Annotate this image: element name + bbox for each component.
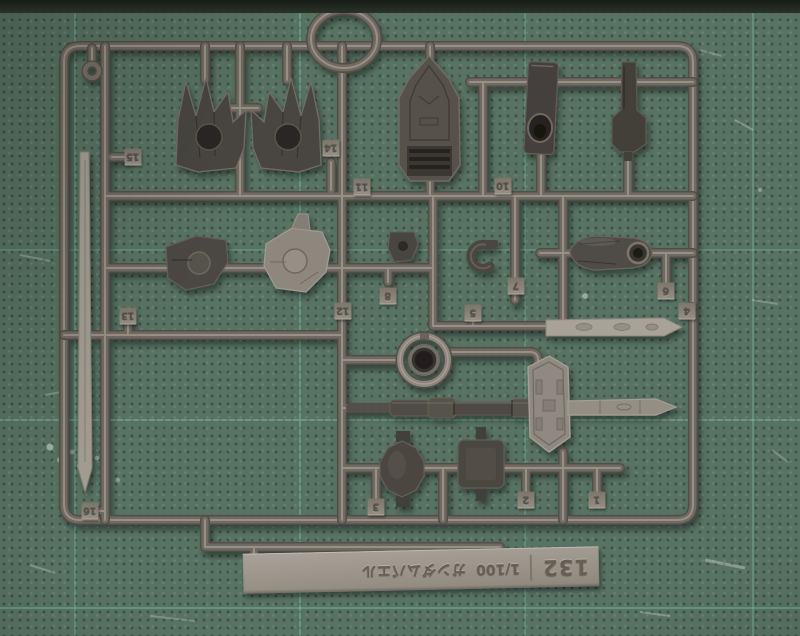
part-number-tag-8: 8 xyxy=(380,288,397,305)
eyelet-ring xyxy=(85,64,99,78)
photo-canvas: 1514111013128756416321 132 1/100 ガンダムバエル xyxy=(0,0,800,636)
pommel-part xyxy=(380,431,424,507)
part-number-tag-6: 6 xyxy=(658,283,675,300)
collar-ring-part xyxy=(400,333,448,384)
part-number-tag-14: 14 xyxy=(323,140,340,157)
part-number-tag-13: 13 xyxy=(120,308,137,325)
c-clip-part xyxy=(471,240,498,268)
part-number-tag-10: 10 xyxy=(495,178,512,195)
label-kit-code: 132 xyxy=(542,554,589,579)
part-number-tag-12: 12 xyxy=(335,303,352,320)
part-number-tag-15: 15 xyxy=(125,149,142,166)
part-number-tag-1: 1 xyxy=(589,492,606,509)
part-number-tag-3: 3 xyxy=(368,499,385,516)
shield-plate-part xyxy=(399,56,460,181)
handle-part xyxy=(612,62,646,161)
pod-part xyxy=(570,236,652,270)
rifle-shaft-part xyxy=(346,398,536,418)
part-number-tag-7: 7 xyxy=(508,278,525,295)
label-kit-name: ガンダムバエル xyxy=(361,559,466,581)
bracket-part-right xyxy=(264,214,330,292)
blade-part-horizontal xyxy=(546,318,682,336)
runner-label-plate: 132 1/100 ガンダムバエル xyxy=(243,546,600,593)
sword-sheath-part xyxy=(528,356,570,452)
label-kit-scale: 1/100 xyxy=(476,560,520,577)
label-divider xyxy=(530,554,533,580)
bracket-part-left xyxy=(166,236,228,290)
runner-frame xyxy=(64,46,693,520)
label-plate-text: 132 1/100 ガンダムバエル xyxy=(243,546,600,593)
arm-tube-part xyxy=(524,61,559,154)
part-number-tag-5: 5 xyxy=(465,305,482,322)
part-number-tag-2: 2 xyxy=(518,492,535,509)
claw-part-right xyxy=(251,78,321,172)
sprue-bars xyxy=(64,46,693,554)
part-number-tag-4: 4 xyxy=(679,303,696,320)
part-number-tag-16: 16 xyxy=(82,503,99,520)
blade-part-left xyxy=(78,152,92,492)
sword-blade-part xyxy=(568,399,676,415)
mat-edge xyxy=(0,0,800,13)
part-number-tag-11: 11 xyxy=(354,179,371,196)
box-joint-part xyxy=(458,427,504,501)
small-joint-part xyxy=(388,232,418,262)
